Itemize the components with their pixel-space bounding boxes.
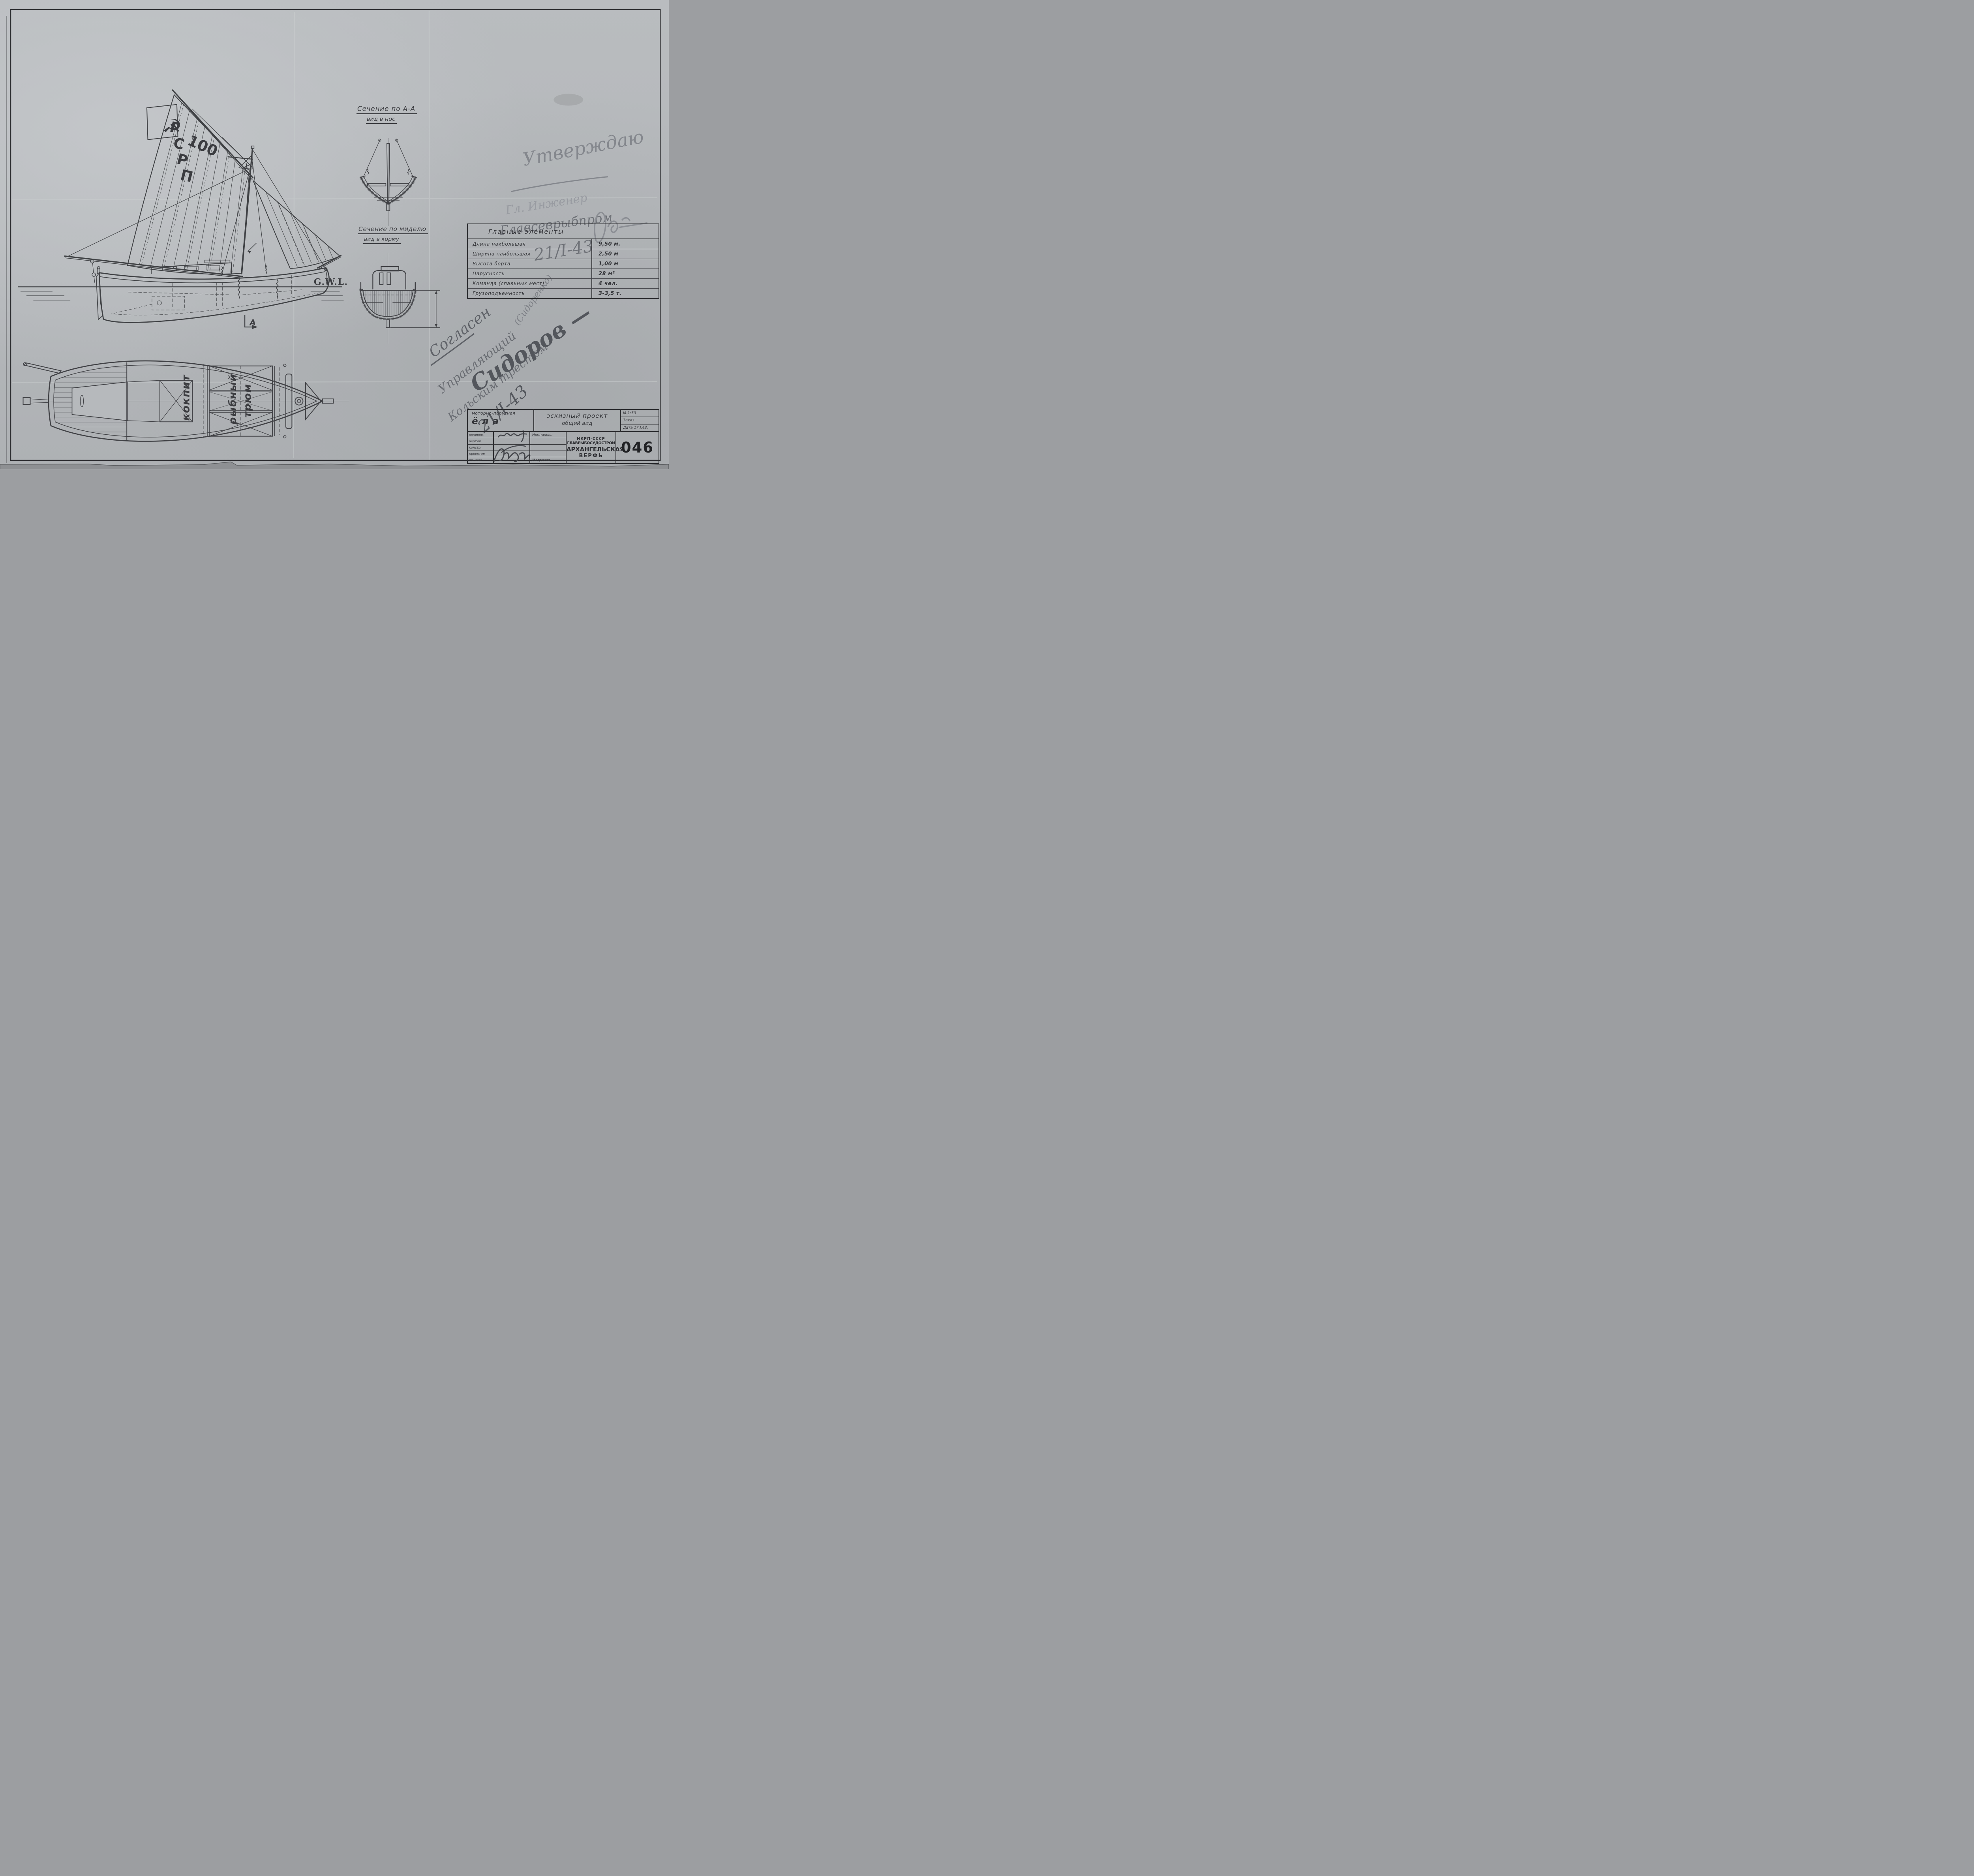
paper-smudge [554, 94, 583, 106]
row-label: Высота борта [468, 259, 591, 269]
row-value: 4 чел. [591, 279, 659, 288]
plan-label-cockpit: кокпит [180, 374, 192, 421]
engine-mark [157, 301, 161, 305]
row-label: Ширина наибольшая [468, 249, 591, 259]
row-value: 9,50 м. [591, 239, 659, 249]
mainsheet [238, 276, 240, 298]
fwd-shroud [252, 162, 266, 274]
names-column: Нянникова Матросов [530, 432, 567, 463]
meta-cell: М-1:50 Заказ Дата 17.I.43. [621, 410, 659, 431]
approval-role: Гл. Инженер [504, 191, 588, 217]
midship-section-view [360, 253, 440, 344]
spars [65, 90, 341, 278]
row-label: Грузоподъемность [468, 289, 591, 298]
role-draftsman: чертил [468, 438, 493, 445]
table-row: Команда (спальных мест) 4 чел. [468, 279, 659, 289]
order-label: Заказ [621, 417, 659, 424]
table-row: Высота борта 1,00 м [468, 259, 659, 269]
plan-label-fishhold-1: рыбный [227, 374, 239, 425]
role-designer: проектир [468, 451, 493, 457]
section-midship-title: Сечение по миделю вид в корму [358, 225, 428, 244]
org-trust: ГЛАВРЫБОСУДОСТРОЙ [567, 441, 615, 445]
row-label: Парусность [468, 269, 591, 278]
waterline-label: G.W.L. [314, 277, 348, 287]
section-marker-a: А [249, 318, 255, 327]
row-value: 2,50 м [591, 249, 659, 259]
blueprint-sheet: ☭ Г С Р П 100 x G.W.L. А кокпит рыбный т… [0, 0, 669, 469]
section-aa-title: Сечение по А-А вид в нос [357, 105, 417, 124]
signatures-column [494, 432, 530, 463]
section-aa-title-text: Сечение по А-А [357, 105, 417, 114]
org-shipyard-city: АРХАНГЕЛЬСКАЯ [567, 446, 615, 453]
sail-letter-3: Р [175, 150, 190, 169]
approval-stamp: Утверждаю [521, 126, 645, 170]
project-view: общий вид [534, 420, 620, 426]
table-title: Главные элементы [468, 224, 659, 239]
section-midship-subtitle-text: вид в корму [363, 236, 401, 244]
project-cell: эскизный проект общий вид [534, 410, 621, 431]
boom [65, 256, 242, 277]
name-copier: Нянникова [530, 432, 566, 438]
section-cut-markers [245, 243, 258, 329]
table-row: Грузоподъемность 3-3,5 т. [468, 289, 659, 298]
project-title: эскизный проект [534, 412, 620, 419]
row-value: 28 м² [591, 269, 659, 278]
role-copier: копиров. [468, 432, 493, 438]
aft-shroud [221, 162, 252, 275]
jibsheet [276, 279, 278, 299]
drawing-scale: М-1:50 [621, 410, 659, 417]
title-block: моторно-парусная ёла эскизный проект общ… [467, 409, 659, 464]
row-value: 3-3,5 т. [591, 289, 659, 298]
vessel-name: ёла [472, 416, 533, 426]
name-chief-engineer: Матросов [530, 457, 566, 463]
deckhouse-midship [373, 267, 405, 289]
table-row: Длина наибольшая 9,50 м. [468, 239, 659, 249]
table-row: Парусность 28 м² [468, 269, 659, 279]
table-row: Ширина наибольшая 2,50 м [468, 249, 659, 259]
row-label: Команда (спальных мест) [468, 279, 591, 288]
drawing-number: 046 [616, 432, 659, 463]
drawing-date: Дата 17.I.43. [621, 424, 659, 431]
section-aa-view [360, 138, 417, 226]
jib-sail [253, 181, 340, 269]
row-label: Длина наибольшая [468, 239, 591, 249]
topping-lift [67, 168, 251, 257]
vessel-type: моторно-парусная [472, 411, 533, 416]
role-chief-engineer: гл. инж [468, 457, 493, 463]
role-constructor: констр. [468, 445, 493, 451]
section-midship-title-text: Сечение по миделю [358, 225, 428, 234]
vessel-name-cell: моторно-парусная ёла [468, 410, 534, 431]
main-elements-table: Главные элементы Длина наибольшая 9,50 м… [467, 223, 659, 299]
approval-underline [511, 177, 608, 192]
roles-column: копиров. чертил констр. проектир гл. инж [468, 432, 494, 463]
org-ministry: НКРП-СССР [567, 437, 615, 441]
org-shipyard: ВЕРФЬ [567, 453, 615, 459]
row-value: 1,00 м [591, 259, 659, 269]
organization-cell: НКРП-СССР ГЛАВРЫБОСУДОСТРОЙ АРХАНГЕЛЬСКА… [567, 432, 616, 463]
section-aa-subtitle-text: вид в нос [366, 116, 397, 124]
plan-label-fishhold-2: трюм [242, 383, 253, 417]
